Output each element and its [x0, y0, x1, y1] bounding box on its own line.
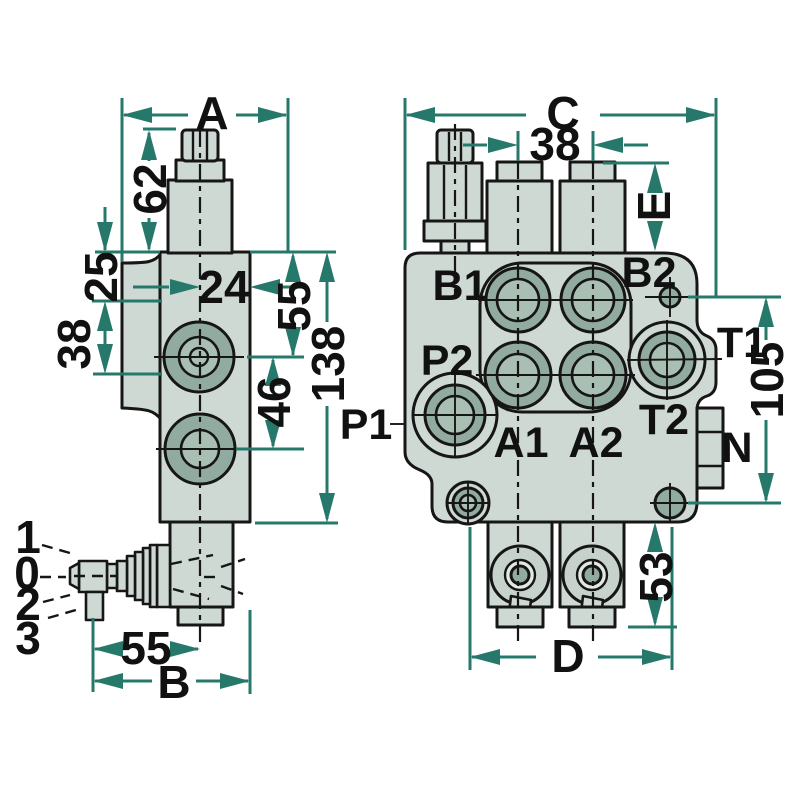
crosshair — [627, 359, 722, 360]
port-label-t1: T1 — [717, 319, 767, 367]
dim-e-arrow — [647, 221, 663, 251]
lever-leader-3 — [48, 610, 76, 618]
side-spool-column — [170, 522, 233, 607]
port-label-a2: A2 — [569, 419, 624, 467]
dim-24-label: 24 — [198, 261, 250, 313]
dim-a-arrow — [122, 107, 152, 123]
dim-53-arrow — [647, 522, 663, 552]
dim-62-label: 62 — [124, 163, 176, 214]
dim-b-label: B — [157, 656, 190, 708]
side-flange — [122, 254, 161, 419]
dim-55b-arrow — [170, 641, 200, 657]
drawing-canvas: A 62 25 38 24 55 138 46 55 B 1 0 2 3 C 3… — [0, 0, 800, 800]
dim-38t-arrow — [488, 137, 518, 153]
dim-55-arrow — [285, 252, 301, 282]
dim-25-label: 25 — [75, 251, 127, 302]
dim-d-arrow — [642, 649, 672, 665]
dim-55-side-label: 55 — [268, 280, 320, 331]
boot-plate — [117, 561, 127, 591]
dim-25-arrow — [97, 222, 113, 252]
lever-leader-1 — [42, 545, 70, 553]
boot-plate — [157, 545, 170, 607]
port-label-a1: A1 — [494, 419, 549, 467]
port-label-t2: T2 — [639, 396, 689, 444]
port-label-b1: B1 — [433, 262, 488, 310]
lever-boot — [70, 545, 170, 620]
dim-38-top-label: 38 — [529, 118, 580, 170]
port-label-b2: B2 — [622, 249, 677, 297]
port-label-n: N — [721, 424, 752, 472]
dim-105-arrow — [758, 473, 774, 503]
dim-62-arrow — [141, 222, 157, 252]
dim-38t-arrow — [593, 137, 623, 153]
dim-e-arrow — [647, 163, 663, 193]
dim-e-label: E — [628, 191, 680, 222]
dim-55b-arrow — [93, 641, 123, 657]
spool1-foot — [497, 607, 543, 627]
dim-46-label: 46 — [248, 376, 300, 427]
n-plug-boss — [697, 408, 723, 488]
dim-c-arrow — [405, 107, 435, 123]
lever-lower-tab — [86, 592, 103, 620]
spool1-cap — [487, 181, 552, 253]
dim-138-arrow — [319, 252, 335, 282]
dim-138-label: 138 — [302, 326, 354, 403]
valve-technical-drawing: A 62 25 38 24 55 138 46 55 B 1 0 2 3 C 3… — [0, 0, 800, 800]
dim-a-arrow — [258, 107, 288, 123]
dim-d-arrow — [470, 649, 500, 665]
dim-a-label: A — [195, 87, 228, 139]
port-label-p2: P2 — [421, 337, 474, 385]
dim-138-arrow — [319, 493, 335, 523]
dim-38-label: 38 — [48, 318, 100, 369]
dim-b-arrow — [220, 673, 250, 689]
dim-c-arrow — [686, 107, 716, 123]
dim-62-arrow — [141, 130, 157, 160]
dim-b-arrow — [93, 673, 123, 689]
port-label-p1: P1 — [340, 401, 393, 449]
dim-53-label: 53 — [630, 551, 682, 602]
lever-pos-3: 3 — [15, 612, 41, 664]
dim-d-label: D — [551, 630, 584, 682]
spool1-end-center — [511, 566, 529, 584]
lever-leader-2 — [43, 595, 70, 602]
